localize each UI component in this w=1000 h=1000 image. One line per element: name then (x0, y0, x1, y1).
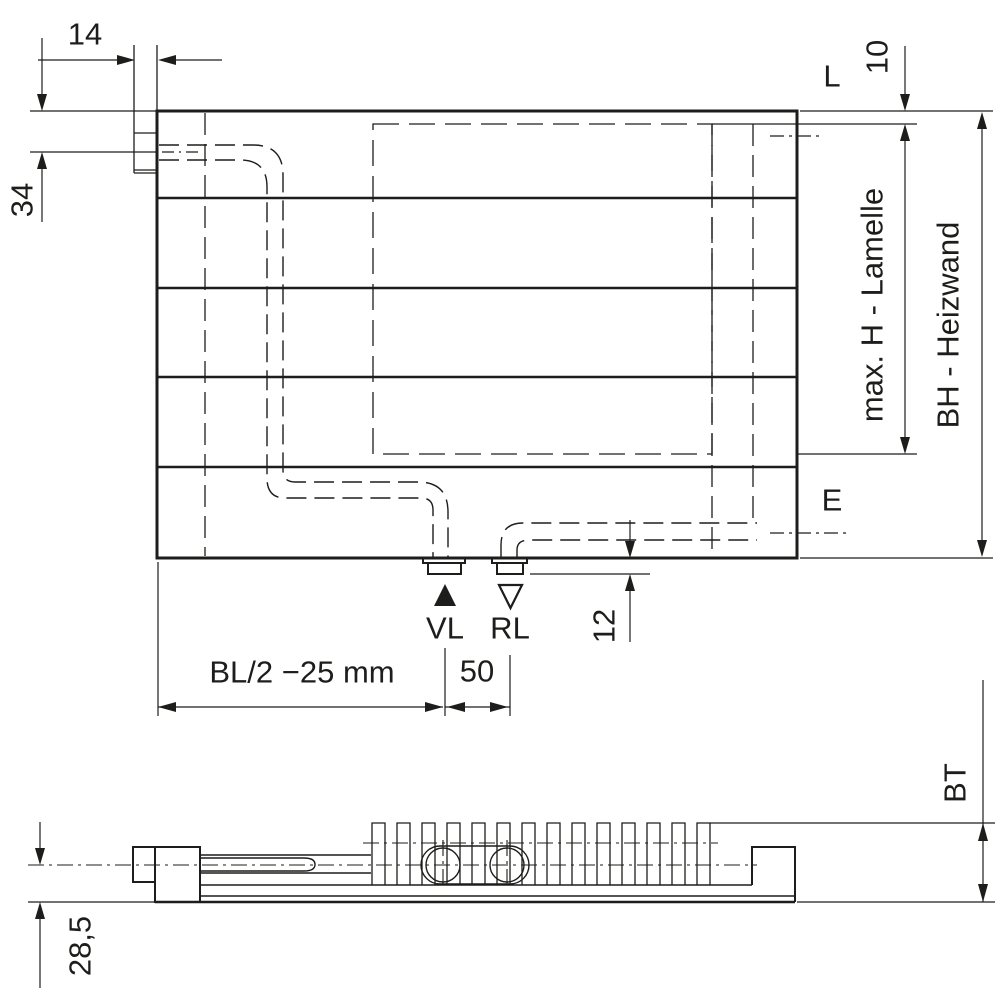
convector-fins (372, 823, 710, 885)
dim-label-inlet-offset: 34 (7, 183, 38, 217)
bottom-plate (155, 885, 795, 902)
dim-heizwand-height (977, 112, 987, 557)
end-hook (752, 847, 795, 902)
side-view-dimensions (28, 680, 995, 988)
dim-label-top-clearance: 10 (862, 40, 893, 74)
rl-connector (492, 558, 527, 574)
supply-label: VL (426, 613, 464, 644)
dim-label-axis-height: 28,5 (65, 916, 96, 976)
dim-lamelle-height (900, 141, 910, 454)
hidden-edge-lines (205, 113, 753, 556)
dim-label-heizwand: BH - Heizwand (933, 222, 964, 429)
dim-label-lamelle-height: max. H - Lamelle (857, 188, 888, 422)
air-vent-label: L (823, 61, 840, 92)
dim-supply-position (158, 702, 443, 712)
dim-label-connector-depth: 12 (589, 609, 620, 643)
panel-outline (157, 111, 797, 558)
drain-label: E (822, 485, 843, 516)
vl-supply-pipe (159, 145, 448, 557)
dim-label-spacing: 50 (460, 656, 494, 687)
radiator-dimension-drawing (0, 0, 1000, 1000)
dim-connector-depth (625, 520, 635, 642)
front-view (134, 45, 847, 608)
dim-build-depth (978, 680, 988, 902)
technical-drawing-page: 14 34 10 L max. H - Lamelle BH - Heizwan… (0, 0, 1000, 1000)
vl-flow-icon (434, 584, 456, 606)
vl-connector (423, 558, 465, 574)
rl-flow-icon (499, 585, 522, 608)
side-view (28, 823, 795, 902)
panel-dividers (157, 198, 797, 467)
connection-block (155, 847, 200, 902)
dim-connection-spacing (445, 702, 510, 712)
supply-duct (200, 855, 371, 873)
dim-label-build-depth: BT (940, 763, 971, 803)
dim-axis-height (35, 822, 45, 988)
dim-label-supply-position: BL/2 −25 mm (209, 657, 394, 688)
return-label: RL (490, 613, 530, 644)
dim-label-tab-width: 14 (68, 19, 102, 50)
dim-tab-width (38, 55, 222, 65)
mounting-tab (134, 45, 157, 173)
dim-top-clearance (900, 46, 910, 141)
